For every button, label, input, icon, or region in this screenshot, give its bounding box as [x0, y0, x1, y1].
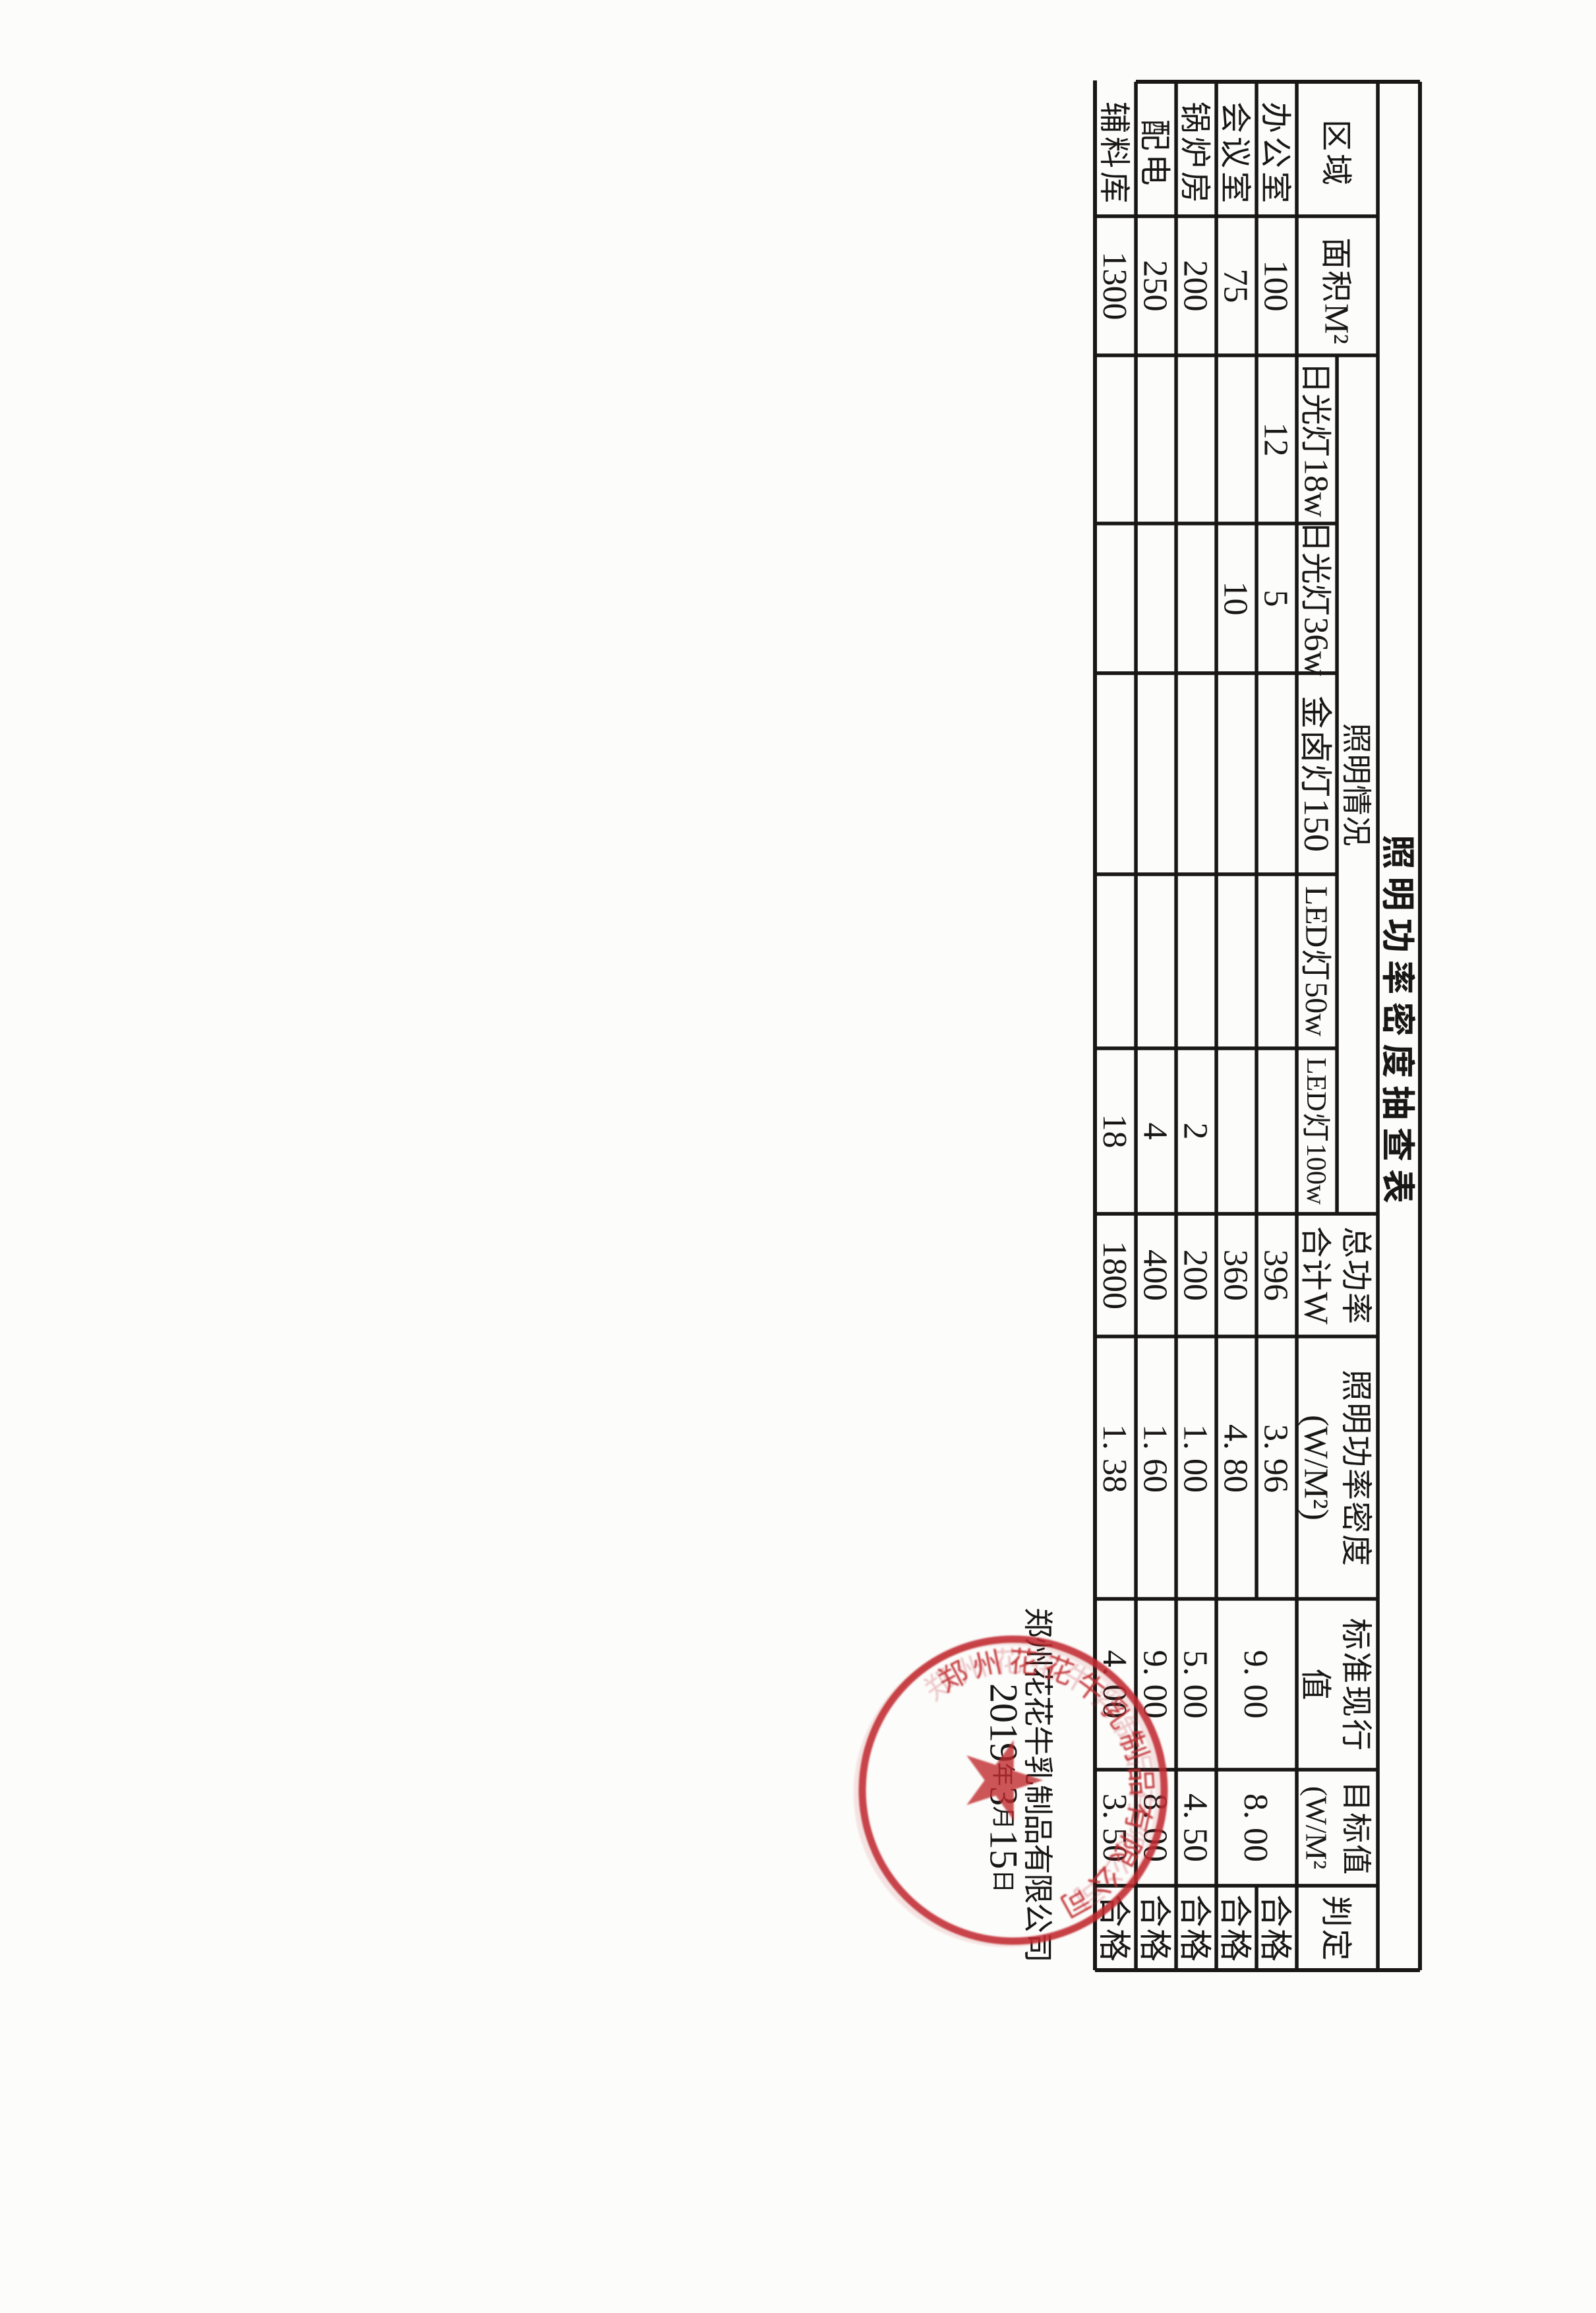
- svg-text:50w: 50w: [1299, 982, 1334, 1036]
- svg-text:2019: 2019: [982, 1683, 1025, 1762]
- svg-text:5. 00: 5. 00: [1177, 1650, 1214, 1719]
- svg-text:2: 2: [1177, 1123, 1214, 1140]
- svg-text:100w: 100w: [1301, 1143, 1331, 1205]
- svg-text:10: 10: [1217, 582, 1255, 616]
- svg-text:1. 60: 1. 60: [1137, 1424, 1174, 1493]
- svg-text:360: 360: [1217, 1249, 1255, 1301]
- svg-text:18: 18: [1096, 1114, 1133, 1149]
- svg-text:200: 200: [1177, 1249, 1214, 1301]
- svg-text:(W/M²): (W/M²): [1297, 1415, 1335, 1520]
- svg-text:1300: 1300: [1096, 252, 1133, 320]
- svg-text:4. 50: 4. 50: [1177, 1793, 1214, 1862]
- svg-text:8. 00: 8. 00: [1237, 1793, 1274, 1862]
- svg-text:100: 100: [1257, 260, 1295, 312]
- svg-text:36w: 36w: [1297, 617, 1335, 676]
- svg-text:75: 75: [1217, 269, 1255, 303]
- svg-text:400: 400: [1137, 1249, 1174, 1301]
- svg-text:396: 396: [1257, 1249, 1295, 1301]
- svg-text:1. 00: 1. 00: [1177, 1424, 1214, 1493]
- svg-text:LED: LED: [1301, 1058, 1331, 1112]
- svg-text:250: 250: [1137, 260, 1174, 312]
- svg-text:(W/M²: (W/M²: [1300, 1786, 1334, 1869]
- svg-text:LED: LED: [1299, 886, 1334, 947]
- svg-text:W: W: [1297, 1292, 1335, 1325]
- svg-text:1. 38: 1. 38: [1096, 1424, 1133, 1493]
- svg-text:1800: 1800: [1096, 1241, 1133, 1309]
- svg-text:15: 15: [982, 1830, 1025, 1869]
- svg-text:200: 200: [1177, 260, 1214, 312]
- svg-text:12: 12: [1257, 423, 1295, 457]
- svg-text:3. 96: 3. 96: [1257, 1424, 1295, 1493]
- svg-text:M²: M²: [1318, 303, 1355, 344]
- svg-text:4. 80: 4. 80: [1217, 1424, 1255, 1493]
- svg-text:150: 150: [1297, 798, 1336, 852]
- svg-text:9. 00: 9. 00: [1237, 1650, 1274, 1719]
- svg-text:4: 4: [1137, 1123, 1174, 1140]
- svg-text:18w: 18w: [1297, 458, 1335, 518]
- svg-text:5: 5: [1257, 590, 1295, 607]
